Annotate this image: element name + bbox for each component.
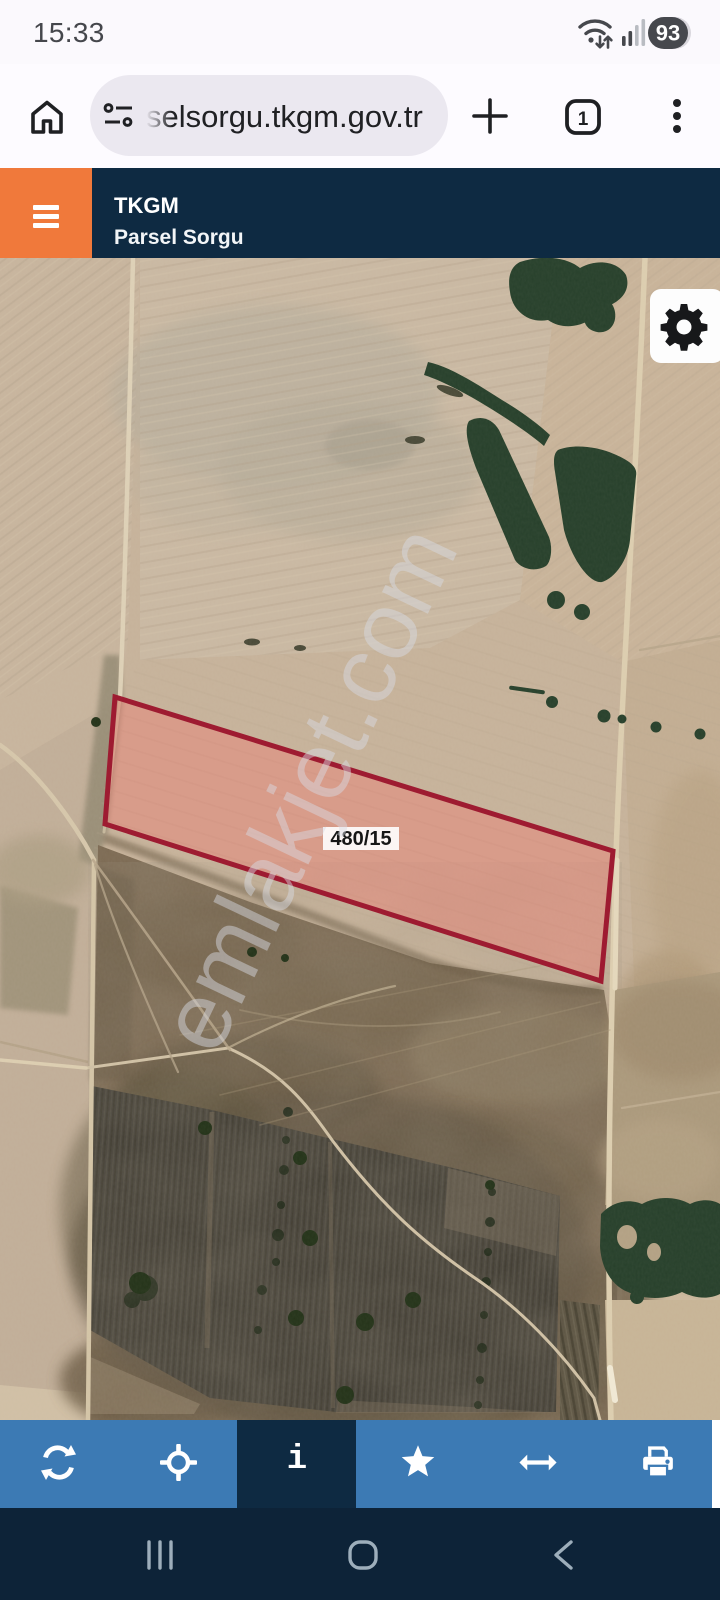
- svg-text:1: 1: [578, 109, 589, 130]
- svg-text:93: 93: [656, 21, 680, 46]
